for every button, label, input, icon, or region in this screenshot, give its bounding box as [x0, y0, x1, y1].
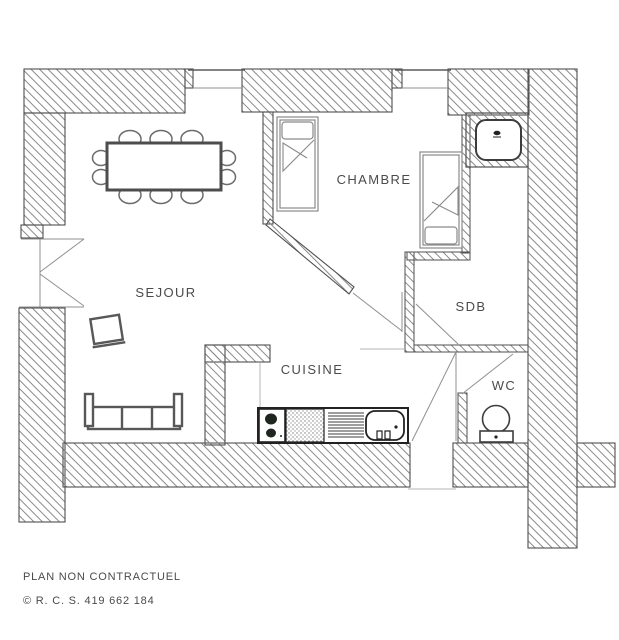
toilet	[480, 406, 513, 443]
wall-right-column	[528, 69, 577, 548]
wall-diagonal-sejour-chambre	[266, 219, 354, 294]
wall-chambre-divider	[263, 112, 273, 224]
wall-top-left-stub	[185, 69, 193, 88]
wall-left-upper	[24, 113, 65, 225]
counter-worktop	[286, 409, 324, 442]
wall-bottom-left	[63, 443, 410, 487]
wall-chambre-sdb	[407, 252, 470, 260]
label-cuisine: CUISINE	[281, 362, 344, 377]
wall-sdb-left	[405, 252, 414, 352]
door-chambre	[353, 292, 402, 332]
pillow	[282, 122, 313, 139]
floor-plan-page: SEJOUR CHAMBRE CUISINE SDB WC PLAN NON C…	[0, 0, 619, 640]
label-sejour: SEJOUR	[135, 285, 196, 300]
door-entrance	[408, 352, 456, 489]
bed-single-left	[277, 117, 318, 211]
wall-top-middle-stub	[392, 69, 402, 88]
shower	[466, 113, 528, 167]
wall-bottom-right	[577, 443, 615, 487]
wall-top-middle	[242, 69, 392, 112]
wall-wc-top	[414, 345, 528, 352]
footer: PLAN NON CONTRACTUEL © R. C. S. 419 662 …	[23, 571, 181, 607]
wall-top-left	[24, 69, 185, 113]
pillow	[425, 227, 457, 244]
wall-kitchen-vertical	[205, 345, 225, 445]
french-door-sejour	[19, 239, 84, 307]
label-sdb: SDB	[456, 299, 487, 314]
label-wc: WC	[492, 378, 516, 393]
wall-wc-left	[458, 393, 467, 443]
dining-table	[107, 143, 221, 190]
wall-top-right-block	[448, 69, 529, 115]
wall-bottom-middle	[453, 443, 528, 487]
wall-left-stub	[21, 225, 43, 238]
stove	[259, 409, 285, 442]
shower-drain	[494, 131, 501, 135]
kitchen-counter	[258, 408, 408, 443]
bed-single-right	[420, 152, 462, 248]
footer-registration: © R. C. S. 419 662 184	[23, 595, 155, 607]
side-table	[88, 314, 125, 347]
footer-disclaimer: PLAN NON CONTRACTUEL	[23, 571, 181, 583]
floor-plan-drawing: SEJOUR CHAMBRE CUISINE SDB WC PLAN NON C…	[0, 0, 619, 640]
door-sdb	[416, 304, 458, 344]
label-chambre: CHAMBRE	[337, 172, 412, 187]
sink-drain	[394, 425, 397, 428]
wall-left-lower	[19, 308, 65, 522]
sofa	[85, 394, 182, 429]
